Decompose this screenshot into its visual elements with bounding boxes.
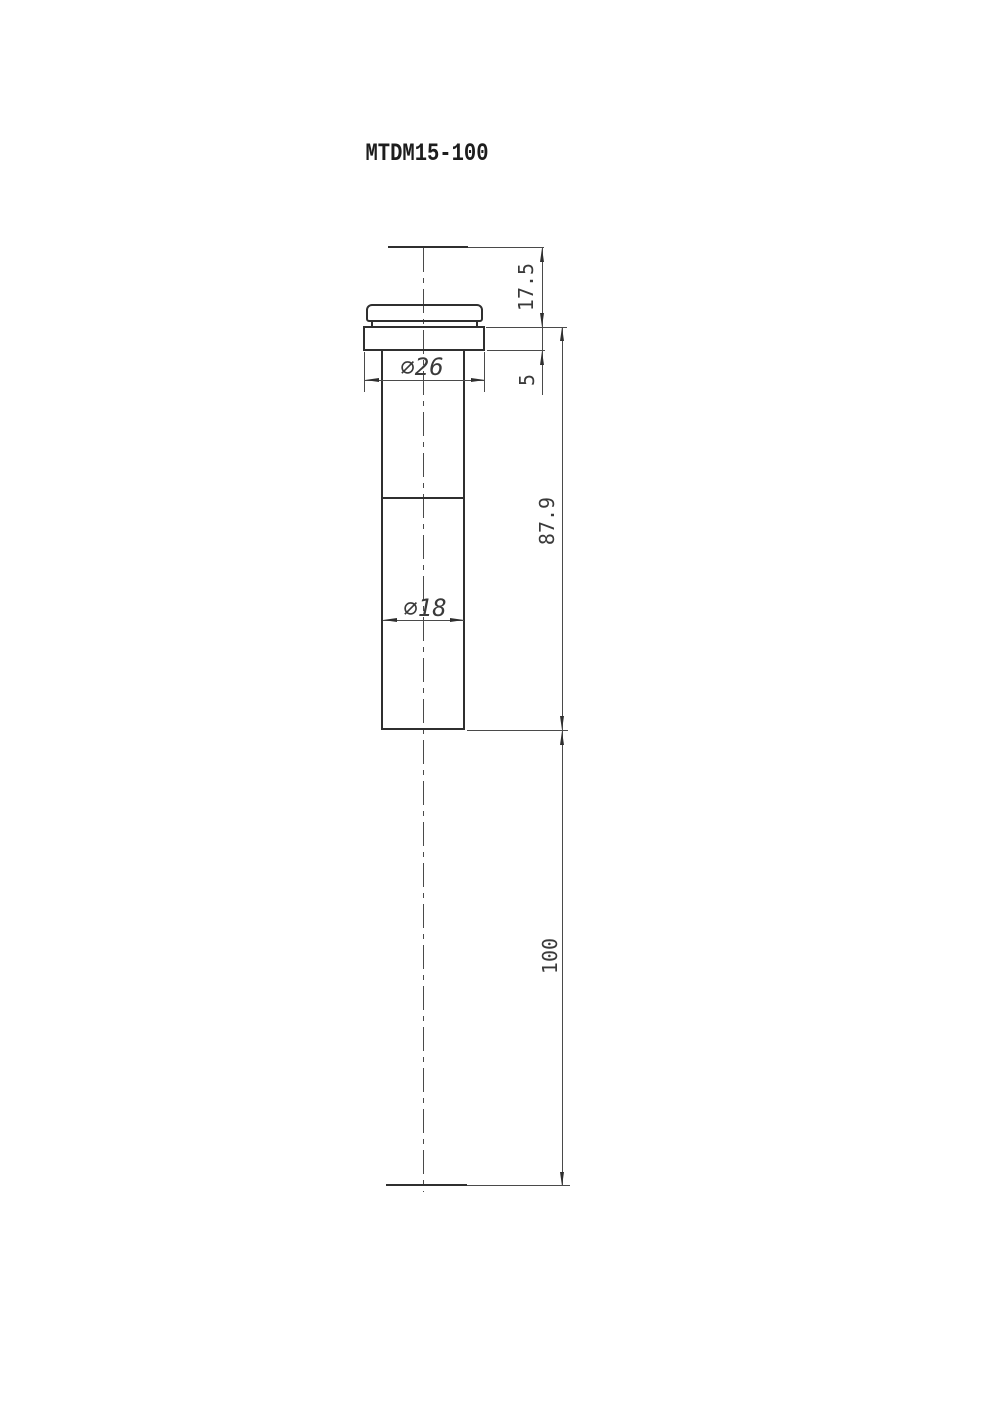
barrel-end-extension-line — [467, 730, 568, 731]
dim-26-label: ⌀26 — [372, 355, 472, 379]
barrel-joint-line — [383, 497, 463, 499]
dim-87-9-and-100-line — [562, 327, 563, 1186]
technical-drawing-canvas: MTDM15-100 17.5 5 87.9 100 ⌀26 ⌀18 — [0, 0, 992, 1403]
dim-87-9-top-arrowhead — [560, 327, 564, 341]
dim-100-top-arrowhead — [560, 731, 564, 745]
dim-87-9-bottom-arrowhead — [560, 716, 564, 730]
dim-26-right-arrowhead — [471, 378, 485, 382]
dim-26-extension-right — [484, 352, 485, 392]
lens-barrel-outline — [381, 350, 465, 730]
dim-18-label: ⌀18 — [375, 596, 475, 620]
dim-17-5-bottom-arrowhead — [540, 313, 544, 327]
dim-100-bottom-arrowhead — [560, 1172, 564, 1186]
lens-flange-outline — [363, 326, 485, 351]
drawing-title: MTDM15-100 — [366, 139, 489, 169]
dim-17-5-top-arrowhead — [540, 248, 544, 262]
object-plane-line — [386, 1184, 467, 1186]
dim-5-label: 5 — [517, 340, 537, 420]
dim-17-5-label: 17.5 — [516, 247, 536, 327]
dim-5-arrowhead — [540, 351, 544, 365]
dim-100-label: 100 — [540, 916, 560, 996]
object-plane-extension-line — [467, 1185, 570, 1186]
flange-top-extension-line — [486, 327, 567, 328]
dim-87-9-label: 87.9 — [537, 481, 557, 561]
dim-26-extension-left — [364, 352, 365, 392]
lens-cap-outline — [366, 304, 483, 322]
image-plane-line — [388, 246, 468, 248]
